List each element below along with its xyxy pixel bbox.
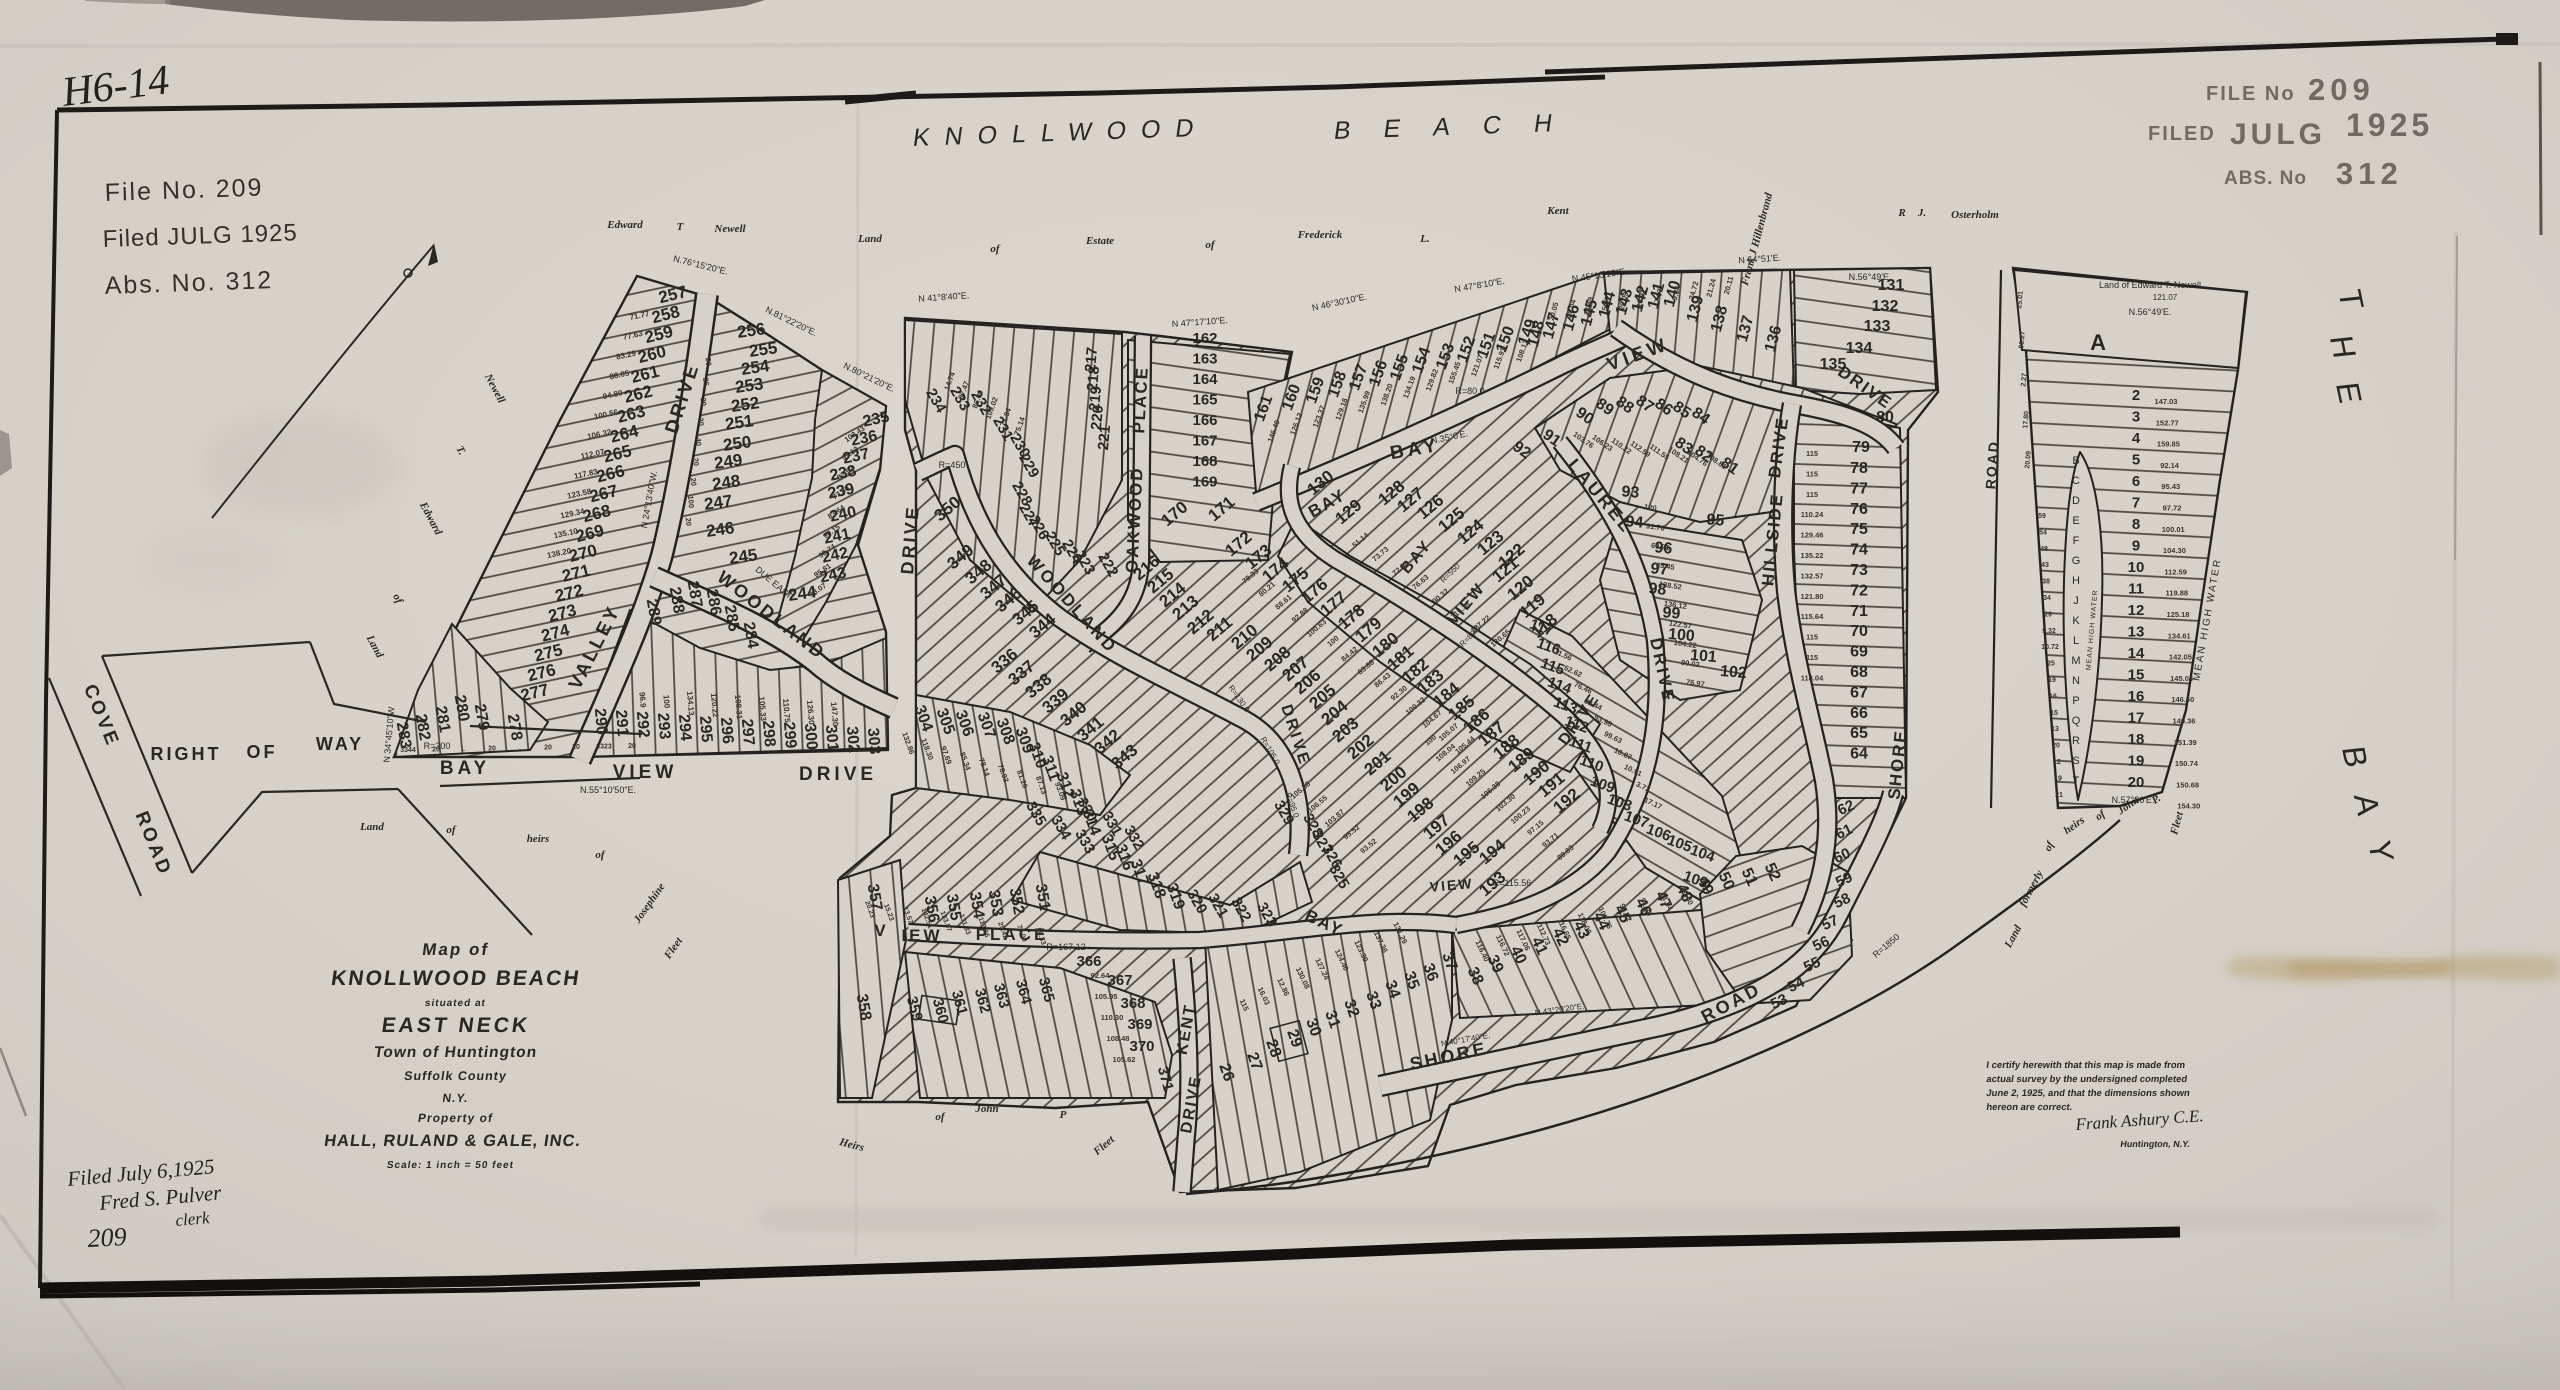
svg-text:11: 11: [2128, 581, 2144, 598]
svg-text:L.: L.: [1419, 233, 1429, 245]
svg-text:300: 300: [801, 723, 820, 751]
svg-text:R=80.0: R=80.0: [1455, 386, 1484, 396]
svg-text:13: 13: [2051, 726, 2059, 733]
svg-text:20: 20: [684, 517, 694, 526]
svg-text:105.62: 105.62: [1113, 1055, 1136, 1064]
svg-text:119.88: 119.88: [2166, 589, 2189, 598]
svg-text:25: 25: [701, 377, 711, 386]
svg-text:73: 73: [1850, 562, 1868, 579]
svg-text:54: 54: [2039, 529, 2047, 536]
svg-text:14: 14: [2128, 645, 2145, 662]
svg-text:.: .: [463, 746, 465, 753]
svg-text:209: 209: [2308, 72, 2375, 107]
svg-text:75: 75: [1850, 521, 1868, 538]
svg-text:File No. 209: File No. 209: [104, 173, 264, 207]
svg-text:Q: Q: [2072, 715, 2081, 727]
svg-text:245: 245: [728, 545, 759, 568]
svg-text:EAST NECK: EAST NECK: [380, 1014, 532, 1037]
svg-text:Property of: Property of: [417, 1111, 494, 1125]
svg-text:ROAD: ROAD: [1982, 440, 2001, 490]
svg-text:96.9: 96.9: [637, 692, 647, 709]
svg-text:8: 8: [2132, 516, 2140, 533]
svg-text:16: 16: [2128, 688, 2145, 705]
svg-text:16: 16: [2049, 693, 2057, 700]
svg-text:6: 6: [2132, 473, 2140, 490]
svg-text:367: 367: [1107, 972, 1132, 989]
svg-text:M: M: [2071, 655, 2080, 667]
svg-text:150.68: 150.68: [2176, 780, 2199, 789]
svg-text:20: 20: [704, 357, 714, 366]
svg-text:115.64: 115.64: [1801, 612, 1824, 621]
svg-text:95: 95: [1706, 511, 1725, 529]
svg-text:115: 115: [1806, 653, 1818, 662]
svg-text:Suffolk County: Suffolk County: [403, 1069, 508, 1083]
svg-text:251: 251: [724, 411, 755, 434]
svg-text:168: 168: [1192, 453, 1217, 470]
svg-text:303: 303: [864, 727, 883, 755]
svg-text:2.27: 2.27: [2020, 373, 2028, 387]
svg-text:Estate: Estate: [1085, 235, 1114, 247]
svg-text:100.01: 100.01: [2162, 525, 2185, 534]
svg-text:159.85: 159.85: [2157, 440, 2180, 449]
svg-text:162: 162: [1192, 330, 1217, 347]
svg-text:65: 65: [1850, 725, 1868, 742]
svg-text:S: S: [2072, 755, 2079, 767]
svg-text:248: 248: [711, 471, 742, 494]
svg-text:20: 20: [2128, 774, 2145, 791]
svg-text:of: of: [1205, 239, 1216, 251]
svg-text:DRIVE: DRIVE: [799, 764, 877, 785]
svg-text:J.: J.: [1917, 207, 1926, 219]
svg-text:105.95: 105.95: [1095, 992, 1118, 1001]
svg-text:78: 78: [1850, 460, 1868, 477]
svg-text:92.14: 92.14: [2160, 461, 2180, 470]
svg-text:120: 120: [1644, 502, 1658, 513]
svg-text:30: 30: [696, 417, 706, 426]
svg-text:165: 165: [1192, 392, 1217, 409]
svg-text:297: 297: [738, 718, 757, 746]
svg-text:20: 20: [432, 747, 440, 754]
svg-text:HALL, RULAND & GALE, INC.: HALL, RULAND & GALE, INC.: [323, 1131, 583, 1150]
svg-text:293: 293: [654, 712, 673, 740]
svg-text:13: 13: [2128, 624, 2145, 641]
svg-text:ABS. No: ABS. No: [2224, 168, 2307, 189]
svg-text:66: 66: [1850, 705, 1868, 722]
svg-text:104.30: 104.30: [2163, 546, 2186, 555]
svg-text:FILE No: FILE No: [2206, 83, 2296, 105]
svg-text:20: 20: [689, 477, 699, 486]
svg-text:20: 20: [691, 457, 701, 466]
svg-text:20: 20: [488, 746, 496, 753]
svg-text:40: 40: [694, 437, 704, 446]
svg-text:18: 18: [2128, 731, 2145, 748]
svg-text:KNOLLWOOD BEACH: KNOLLWOOD BEACH: [330, 967, 582, 990]
svg-text:FILED: FILED: [2148, 123, 2216, 145]
svg-text:I certify herewith that this m: I certify herewith that this map is made…: [1986, 1060, 2186, 1071]
svg-text:BAY: BAY: [440, 758, 490, 779]
svg-text:295: 295: [696, 715, 715, 743]
svg-text:110.24: 110.24: [1801, 510, 1824, 519]
svg-text:actual survey by the undersign: actual survey by the undersigned complet…: [1986, 1074, 2189, 1085]
svg-text:17: 17: [2128, 710, 2145, 727]
svg-text:H: H: [2072, 575, 2080, 587]
svg-text:12: 12: [2053, 759, 2061, 766]
svg-text:P: P: [1060, 1109, 1067, 1121]
svg-text:Map of: Map of: [421, 940, 490, 959]
svg-text:N.55°10'50"E.: N.55°10'50"E.: [580, 785, 636, 795]
svg-text:146.50: 146.50: [2171, 695, 2194, 704]
svg-text:15: 15: [2128, 667, 2145, 684]
svg-text:12: 12: [2128, 602, 2145, 619]
svg-text:221: 221: [1095, 424, 1114, 450]
svg-text:132.57: 132.57: [1801, 571, 1824, 580]
svg-text:70: 70: [1850, 623, 1868, 640]
svg-text:Kent: Kent: [1546, 205, 1569, 217]
svg-text:20: 20: [544, 745, 552, 752]
svg-text:115: 115: [1806, 449, 1818, 458]
svg-text:164: 164: [1192, 371, 1218, 388]
svg-text:20: 20: [628, 743, 636, 750]
svg-text:368: 368: [1120, 995, 1145, 1012]
svg-text:hereon are correct.: hereon are correct.: [1986, 1102, 2073, 1113]
svg-text:D: D: [2072, 495, 2080, 507]
svg-text:92.64: 92.64: [1091, 971, 1111, 980]
svg-text:Edward: Edward: [606, 219, 643, 231]
svg-text:48: 48: [2040, 546, 2048, 553]
svg-text:121.80: 121.80: [1801, 592, 1824, 601]
svg-text:151.39: 151.39: [2174, 738, 2197, 747]
svg-text:Scale: 1 inch = 50 feet: Scale: 1 inch = 50 feet: [386, 1160, 515, 1171]
svg-text:294: 294: [675, 714, 694, 742]
svg-text:129.46: 129.46: [1801, 531, 1824, 540]
svg-text:150.74: 150.74: [2175, 759, 2199, 768]
svg-text:E: E: [2329, 381, 2369, 406]
svg-text:152.77: 152.77: [2156, 418, 2179, 427]
svg-text:OF: OF: [247, 742, 278, 762]
svg-text:370: 370: [1129, 1038, 1154, 1055]
svg-text:121.07: 121.07: [2153, 293, 2178, 302]
svg-text:77: 77: [1850, 480, 1868, 497]
svg-text:.: .: [519, 745, 521, 752]
svg-text:of: of: [935, 1111, 946, 1123]
svg-text:134: 134: [1846, 340, 1873, 357]
svg-text:PLACE: PLACE: [1129, 365, 1152, 434]
svg-text:247: 247: [703, 491, 734, 514]
svg-text:79: 79: [1852, 439, 1870, 456]
svg-text:9.32: 9.32: [2042, 628, 2056, 635]
svg-text:10: 10: [2128, 559, 2145, 576]
svg-text:68: 68: [1850, 664, 1868, 681]
svg-text:19: 19: [2048, 677, 2056, 684]
svg-text:Frederick: Frederick: [1297, 229, 1343, 241]
svg-text:169: 169: [1192, 474, 1217, 491]
svg-text:K: K: [2072, 615, 2080, 627]
svg-text:149.36: 149.36: [2173, 717, 2196, 726]
svg-text:93: 93: [1621, 483, 1640, 501]
svg-text:J: J: [2073, 595, 2079, 607]
svg-text:69: 69: [1850, 644, 1868, 661]
svg-text:115: 115: [1806, 490, 1818, 499]
svg-text:IEW: IEW: [901, 926, 942, 945]
svg-text:Y: Y: [2361, 839, 2401, 864]
svg-text:B: B: [2072, 455, 2079, 467]
svg-text:N.56°49'E.: N.56°49'E.: [1849, 272, 1892, 282]
svg-text:June 2, 1925, and that the dim: June 2, 1925, and that the dimensions sh…: [1986, 1088, 2191, 1099]
svg-text:Land: Land: [359, 821, 384, 833]
svg-text:118.04: 118.04: [1801, 673, 1824, 682]
svg-text:135.22: 135.22: [1801, 551, 1824, 560]
svg-text:301: 301: [822, 724, 841, 752]
svg-text:VIEW: VIEW: [613, 762, 678, 783]
svg-text:133: 133: [1864, 318, 1891, 335]
svg-text:15: 15: [2050, 710, 2058, 717]
svg-text:WAY: WAY: [316, 734, 364, 754]
svg-text:71: 71: [1850, 603, 1868, 620]
svg-text:N.Y.: N.Y.: [442, 1091, 470, 1105]
svg-text:25: 25: [2047, 661, 2055, 668]
svg-text:R=115.56: R=115.56: [1493, 878, 1532, 888]
svg-text:T: T: [2331, 287, 2371, 310]
svg-text:P: P: [2072, 695, 2079, 707]
svg-text:34: 34: [2043, 595, 2051, 602]
svg-text:102: 102: [1719, 663, 1747, 682]
svg-text:29: 29: [2044, 611, 2052, 618]
svg-text:154.30: 154.30: [2177, 802, 2200, 811]
svg-text:of: of: [446, 824, 457, 836]
svg-text:366: 366: [1076, 953, 1101, 970]
svg-text:clerk: clerk: [175, 1208, 211, 1230]
svg-text:299: 299: [780, 721, 799, 749]
svg-text:19: 19: [2128, 753, 2145, 770]
svg-text:R: R: [2072, 735, 2080, 747]
svg-text:20: 20: [572, 744, 580, 751]
svg-text:R: R: [1897, 207, 1905, 219]
svg-text:64: 64: [1850, 746, 1868, 763]
svg-text:20: 20: [2052, 743, 2060, 750]
svg-text:L: L: [2073, 635, 2079, 647]
svg-text:115: 115: [1806, 469, 1818, 478]
svg-text:3323: 3323: [596, 744, 612, 751]
svg-text:9: 9: [2132, 538, 2140, 555]
svg-text:N.56°49'E.: N.56°49'E.: [2129, 307, 2172, 317]
svg-text:145.04: 145.04: [2170, 674, 2194, 683]
svg-text:5: 5: [2132, 452, 2140, 469]
svg-text:95.43: 95.43: [2161, 482, 2180, 491]
svg-text:134.61: 134.61: [2168, 631, 2191, 640]
svg-text:312: 312: [2336, 156, 2403, 191]
svg-text:20: 20: [699, 397, 709, 406]
svg-text:2: 2: [2132, 387, 2140, 404]
svg-text:3: 3: [2132, 409, 2140, 426]
svg-text:N: N: [2072, 675, 2080, 687]
svg-text:302: 302: [843, 726, 862, 754]
svg-text:RIGHT: RIGHT: [151, 744, 222, 764]
svg-text:43: 43: [2041, 562, 2049, 569]
svg-text:A: A: [2090, 330, 2106, 355]
svg-text:298: 298: [759, 720, 778, 748]
svg-text:74: 74: [1850, 542, 1868, 559]
svg-text:246: 246: [705, 518, 736, 541]
svg-text:110.30: 110.30: [1101, 1013, 1124, 1022]
svg-text:112.59: 112.59: [2164, 567, 2187, 576]
svg-text:10.72: 10.72: [2041, 644, 2059, 651]
svg-text:19: 19: [2054, 775, 2062, 782]
svg-text:H: H: [2323, 334, 2364, 360]
svg-text:249: 249: [713, 450, 744, 473]
svg-text:97.72: 97.72: [2163, 504, 2182, 513]
svg-text:100: 100: [686, 495, 696, 508]
svg-text:of: of: [990, 243, 1001, 255]
svg-text:3344: 3344: [400, 747, 416, 754]
svg-text:John: John: [974, 1103, 998, 1115]
svg-text:115: 115: [1806, 633, 1818, 642]
svg-text:E: E: [2072, 515, 2079, 527]
svg-text:209: 209: [87, 1222, 127, 1253]
svg-text:situated at: situated at: [424, 998, 486, 1009]
svg-text:100: 100: [661, 695, 671, 710]
svg-text:V: V: [874, 921, 886, 940]
svg-text:38: 38: [2042, 579, 2050, 586]
svg-text:Land of Edward T. Newell: Land of Edward T. Newell: [2099, 280, 2201, 290]
svg-text:108.48: 108.48: [1107, 1034, 1130, 1043]
svg-text:JULG: JULG: [2230, 118, 2326, 151]
svg-text:Newell: Newell: [713, 223, 746, 235]
svg-text:142.05: 142.05: [2169, 653, 2192, 662]
svg-text:Land: Land: [857, 233, 882, 245]
svg-text:of: of: [595, 849, 606, 861]
svg-text:G: G: [2072, 555, 2081, 567]
svg-text:167: 167: [1192, 433, 1217, 450]
svg-text:166: 166: [1192, 412, 1217, 429]
svg-text:Town of Huntington: Town of Huntington: [373, 1044, 538, 1061]
svg-text:7: 7: [2132, 495, 2140, 512]
svg-text:21: 21: [2055, 792, 2063, 799]
svg-text:59: 59: [2038, 513, 2046, 520]
svg-text:Huntington, N.Y.: Huntington, N.Y.: [2120, 1139, 2191, 1149]
svg-text:132: 132: [1872, 298, 1899, 315]
svg-text:F: F: [2073, 535, 2080, 547]
svg-text:T: T: [2073, 775, 2080, 787]
svg-text:Abs. No. 312: Abs. No. 312: [104, 266, 273, 300]
svg-text:125.18: 125.18: [2167, 610, 2190, 619]
svg-text:B: B: [2335, 745, 2375, 770]
svg-text:369: 369: [1127, 1016, 1152, 1033]
svg-text:R=450: R=450: [939, 460, 966, 470]
svg-text:4: 4: [2132, 430, 2141, 447]
svg-text:163: 163: [1192, 351, 1217, 368]
svg-text:76: 76: [1850, 501, 1868, 518]
svg-text:C: C: [2072, 475, 2080, 487]
svg-text:147.03: 147.03: [2155, 397, 2178, 406]
svg-text:72: 72: [1850, 582, 1868, 599]
svg-text:R=167.12: R=167.12: [1046, 942, 1085, 952]
svg-text:1925: 1925: [2346, 107, 2433, 143]
svg-text:Osterholm: Osterholm: [1951, 209, 1999, 221]
svg-text:256: 256: [736, 319, 767, 342]
svg-text:296: 296: [717, 717, 736, 745]
svg-text:67: 67: [1850, 684, 1868, 701]
svg-text:heirs: heirs: [527, 833, 550, 845]
svg-text:A: A: [2347, 793, 2387, 818]
